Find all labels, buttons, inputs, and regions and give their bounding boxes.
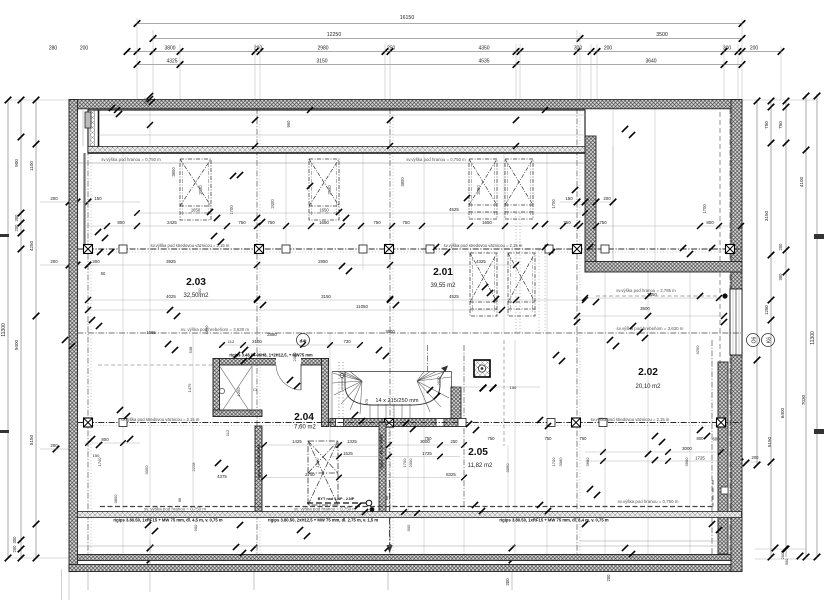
svg-text:rigips 3.80.50, 1xRF15 + MW 75: rigips 3.80.50, 1xRF15 + MW 75 mm, dl. 8…	[499, 518, 608, 523]
svg-text:sv.výška pod stredovou väznico: sv.výška pod stredovou väznicou = 2,15 m	[444, 243, 523, 248]
svg-text:1650: 1650	[191, 208, 201, 213]
svg-text:sv.výška pod hranou = 0,750 m: sv.výška pod hranou = 0,750 m	[406, 157, 466, 162]
svg-text:200: 200	[80, 46, 89, 52]
svg-text:Cl: Cl	[253, 387, 257, 392]
svg-text:rigips 3.48.36-96H8: rigips 3.48.36-96H8	[379, 434, 384, 470]
svg-text:1100: 1100	[29, 161, 34, 171]
svg-text:750: 750	[373, 220, 381, 225]
svg-text:1650: 1650	[319, 220, 329, 225]
svg-text:2425: 2425	[167, 220, 177, 225]
svg-text:3500: 3500	[656, 32, 668, 38]
svg-text:BYT nad 1.NP - 2.NP: BYT nad 1.NP - 2.NP	[318, 497, 355, 501]
svg-text:280: 280	[49, 46, 58, 52]
svg-text:3000: 3000	[420, 439, 430, 444]
svg-text:3500: 3500	[640, 306, 650, 311]
svg-text:5150: 5150	[29, 434, 34, 445]
svg-text:1250: 1250	[236, 387, 241, 397]
svg-text:sv. výška pod hrebeňom = 3,630: sv. výška pod hrebeňom = 3,630 m	[181, 327, 249, 332]
svg-text:150: 150	[510, 385, 517, 390]
svg-text:88: 88	[178, 498, 182, 502]
svg-text:300: 300	[12, 536, 17, 544]
svg-text:2050: 2050	[476, 185, 481, 195]
svg-text:2050: 2050	[198, 185, 203, 195]
svg-text:800: 800	[101, 437, 109, 442]
svg-text:800: 800	[697, 436, 705, 441]
svg-text:3925: 3925	[166, 259, 176, 264]
svg-text:50: 50	[101, 271, 106, 276]
svg-text:sv.výška pod hranou = 2,785 m: sv.výška pod hranou = 2,785 m	[616, 288, 676, 293]
svg-text:150: 150	[565, 196, 573, 201]
svg-text:3640: 3640	[645, 59, 656, 65]
svg-text:3800: 3800	[400, 177, 405, 187]
svg-text:200: 200	[50, 196, 58, 201]
svg-text:14 x 215/250 mm: 14 x 215/250 mm	[375, 398, 419, 404]
svg-text:O6: O6	[752, 336, 758, 343]
svg-text:3050: 3050	[505, 463, 510, 473]
svg-text:2980: 2980	[317, 46, 328, 52]
svg-text:300: 300	[778, 273, 783, 281]
svg-text:4325: 4325	[476, 259, 486, 264]
svg-text:200: 200	[778, 243, 783, 251]
svg-text:4025: 4025	[166, 294, 176, 299]
svg-text:150: 150	[94, 196, 102, 201]
svg-text:975: 975	[365, 399, 369, 405]
svg-text:1325: 1325	[347, 439, 357, 444]
svg-text:2228: 2228	[191, 462, 196, 472]
svg-text:12250: 12250	[327, 32, 342, 38]
svg-text:1725: 1725	[695, 456, 705, 461]
svg-text:300: 300	[92, 259, 100, 264]
svg-text:2.03: 2.03	[186, 277, 206, 288]
svg-text:d4i: d4i	[300, 339, 307, 345]
svg-text:2030: 2030	[436, 376, 441, 386]
svg-text:11050: 11050	[356, 304, 368, 309]
svg-text:3500: 3500	[385, 329, 395, 334]
svg-text:750: 750	[402, 220, 410, 225]
svg-text:2.01: 2.01	[433, 267, 453, 278]
svg-text:K6: K6	[767, 337, 773, 343]
svg-text:200: 200	[750, 46, 759, 52]
svg-text:rigips 3.48.36-96H8: rigips 3.48.36-96H8	[256, 444, 261, 480]
svg-text:32,50 m2: 32,50 m2	[183, 293, 209, 299]
svg-text:1425: 1425	[292, 439, 302, 444]
svg-text:11300: 11300	[810, 331, 816, 345]
svg-text:112: 112	[228, 339, 235, 344]
svg-text:9400: 9400	[14, 339, 19, 350]
svg-text:960: 960	[286, 120, 291, 128]
svg-text:200: 200	[603, 196, 611, 201]
svg-text:1650: 1650	[482, 220, 492, 225]
svg-text:200: 200	[50, 443, 58, 448]
svg-text:750: 750	[238, 220, 246, 225]
svg-text:4375: 4375	[217, 474, 227, 479]
svg-text:150: 150	[93, 453, 100, 458]
svg-text:200: 200	[12, 545, 17, 553]
svg-text:2400: 2400	[270, 199, 275, 209]
svg-text:4350: 4350	[478, 46, 489, 52]
svg-text:8325: 8325	[446, 472, 456, 477]
svg-text:3150: 3150	[316, 59, 327, 65]
svg-text:600: 600	[713, 437, 721, 442]
svg-text:4250: 4250	[29, 240, 34, 251]
svg-text:200: 200	[606, 574, 611, 582]
svg-text:3800: 3800	[171, 167, 176, 177]
svg-text:rigips 3.80.50, 1xRF15 + MW 75: rigips 3.80.50, 1xRF15 + MW 75 mm, dl. 4…	[113, 518, 222, 523]
svg-text:2.05: 2.05	[468, 447, 488, 458]
svg-text:11,82 m2: 11,82 m2	[468, 463, 493, 469]
svg-text:200: 200	[780, 552, 785, 559]
svg-text:300: 300	[784, 558, 789, 565]
svg-text:39,55 m2: 39,55 m2	[430, 283, 456, 289]
svg-text:750: 750	[599, 220, 607, 225]
svg-text:2880: 2880	[267, 332, 277, 337]
svg-text:2080: 2080	[292, 352, 297, 362]
svg-text:800: 800	[706, 220, 714, 225]
svg-text:1525: 1525	[343, 451, 353, 456]
svg-text:800: 800	[117, 220, 125, 225]
svg-text:1725: 1725	[422, 451, 432, 456]
svg-text:16150: 16150	[400, 15, 415, 21]
svg-text:sv.výška pod hranou = 0,750 m: sv.výška pod hranou = 0,750 m	[618, 499, 679, 504]
svg-text:200: 200	[505, 578, 510, 586]
svg-text:2.04: 2.04	[294, 412, 314, 423]
svg-text:sv. výška pod hranou = 0,750 m: sv. výška pod hranou = 0,750 m	[144, 507, 206, 512]
svg-text:2100: 2100	[252, 339, 262, 344]
svg-text:1700: 1700	[551, 199, 556, 209]
svg-text:1700: 1700	[402, 458, 407, 468]
svg-text:3150: 3150	[321, 294, 331, 299]
svg-text:3000: 3000	[682, 446, 692, 451]
svg-text:2050: 2050	[327, 185, 332, 195]
svg-text:1475: 1475	[187, 383, 192, 393]
svg-text:250: 250	[451, 439, 459, 444]
svg-text:2000: 2000	[408, 458, 413, 468]
svg-text:538: 538	[188, 346, 193, 353]
svg-text:6400: 6400	[780, 407, 785, 418]
svg-text:11300: 11300	[1, 323, 7, 337]
svg-text:3050: 3050	[144, 465, 149, 475]
svg-text:rigips 3.80.50, 2xH12,5 + MW 7: rigips 3.80.50, 2xH12,5 + MW 75 mm, dl. …	[268, 518, 378, 523]
svg-text:750: 750	[580, 436, 588, 441]
svg-text:sv.výška pod stredovou väznico: sv.výška pod stredovou väznicou = 2,15 m	[151, 243, 230, 248]
svg-text:112: 112	[225, 429, 230, 436]
svg-text:1650: 1650	[319, 208, 329, 213]
svg-text:2950: 2950	[318, 259, 328, 264]
svg-text:3080: 3080	[558, 457, 563, 467]
svg-text:2.02: 2.02	[638, 367, 658, 378]
svg-text:900: 900	[193, 524, 198, 531]
svg-text:5150: 5150	[767, 436, 772, 447]
svg-text:sv. výška pod hranou = 0,750 m: sv. výška pod hranou = 0,750 m	[294, 507, 356, 512]
svg-text:1780: 1780	[315, 458, 320, 468]
svg-text:4800: 4800	[204, 325, 209, 335]
svg-text:900: 900	[14, 159, 19, 167]
svg-text:3800: 3800	[164, 46, 175, 52]
svg-text:88: 88	[385, 496, 389, 500]
svg-text:1250: 1250	[764, 305, 769, 315]
svg-text:750: 750	[778, 121, 783, 129]
svg-text:3680: 3680	[684, 457, 689, 467]
svg-text:4525: 4525	[449, 207, 459, 212]
svg-text:sv.výška pod hranou = 0,750 m: sv.výška pod hranou = 0,750 m	[101, 157, 161, 162]
svg-text:200: 200	[752, 455, 760, 460]
svg-text:20,10 m2: 20,10 m2	[635, 384, 661, 390]
svg-text:sv.výška pod stredovou väznico: sv.výška pod stredovou väznicou = 2,15 m	[121, 417, 200, 422]
svg-text:sv.výška pod hrebeňom = 3,630: sv.výška pod hrebeňom = 3,630 m	[617, 326, 684, 331]
svg-text:7030: 7030	[801, 394, 806, 405]
svg-text:2750: 2750	[305, 472, 315, 477]
svg-text:1700: 1700	[702, 204, 707, 214]
svg-text:3800: 3800	[113, 494, 118, 504]
svg-text:4325: 4325	[166, 59, 177, 65]
svg-text:3150: 3150	[764, 210, 769, 221]
svg-text:1565: 1565	[146, 330, 156, 335]
svg-text:4100: 4100	[799, 176, 804, 187]
svg-text:750: 750	[488, 436, 496, 441]
svg-text:3250: 3250	[695, 345, 700, 355]
svg-text:750: 750	[545, 436, 553, 441]
svg-text:750: 750	[267, 220, 275, 225]
svg-text:4535: 4535	[478, 59, 489, 65]
svg-text:rigips 3.48.04-96H8, 1+2H12,5,: rigips 3.48.04-96H8, 1+2H12,5, + MW75 mm	[229, 353, 313, 358]
svg-text:3680: 3680	[585, 457, 590, 467]
svg-text:4525: 4525	[449, 294, 459, 299]
svg-text:1700: 1700	[551, 457, 556, 467]
svg-text:750: 750	[764, 121, 769, 129]
svg-text:900: 900	[406, 524, 411, 531]
svg-text:730: 730	[343, 339, 351, 344]
svg-text:sv.výška pod stredovou väznico: sv.výška pod stredovou väznicou = 2,15 m	[591, 417, 670, 422]
svg-text:200: 200	[604, 46, 613, 52]
svg-text:200: 200	[50, 259, 58, 264]
svg-text:1700: 1700	[97, 457, 102, 467]
